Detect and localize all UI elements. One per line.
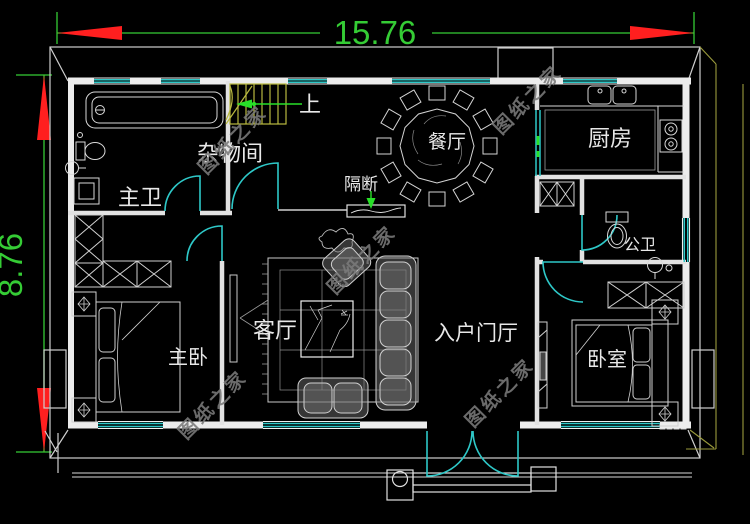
top-dimension-value: 15.76 [334, 14, 417, 51]
room-label-master-bath: 主卫 [118, 185, 162, 210]
room-label-stairs-up: 上 [299, 92, 321, 117]
watermark-text: 图纸之家 [173, 365, 251, 443]
porch-edge [72, 473, 692, 477]
room-label-public-bath: 公卫 [624, 237, 656, 254]
floor-plan-svg: 15.76 8.76 [0, 0, 750, 524]
master-bedroom-furniture [72, 215, 180, 422]
watermarks: 图纸之家 图纸之家 图纸之家 图纸之家 图纸之家 [173, 60, 566, 443]
room-label-entry-hall: 入户门厅 [434, 322, 518, 345]
wardrobe-bedroom [608, 282, 684, 308]
room-label-living: 客厅 [253, 318, 297, 343]
storage-door [232, 163, 278, 209]
bedroom-door [543, 262, 583, 302]
left-dimension-value: 8.76 [0, 233, 29, 297]
entry-steps [387, 467, 556, 500]
dim-arrow-left-icon [57, 26, 122, 40]
loveseat [298, 378, 368, 418]
cabinet-x [540, 182, 574, 206]
master-bath-door [165, 176, 200, 211]
room-label-dining: 餐厅 [428, 131, 466, 153]
entry-double-door [427, 431, 472, 476]
wardrobe-l [75, 215, 171, 287]
dim-arrow-up-icon [37, 75, 51, 140]
partition-console [347, 205, 405, 217]
room-label-master-bed: 主卧 [168, 346, 208, 369]
room-label-kitchen: 厨房 [588, 126, 632, 151]
coffee-table [301, 301, 353, 357]
bedroom-furniture [538, 182, 684, 426]
tv-panel [230, 275, 237, 362]
dim-arrow-right-icon [630, 26, 694, 40]
kitchen-slider-marks [537, 136, 540, 157]
floor-plan-screenshot: 15.76 8.76 [0, 0, 750, 524]
master-bedroom-door [187, 226, 222, 261]
sofa-right [376, 256, 416, 410]
room-label-partition: 隔断 [344, 175, 378, 194]
watermark-text: 图纸之家 [460, 353, 538, 431]
tv-cabinet-bedroom [538, 322, 547, 408]
watermark-text: 图纸之家 [488, 60, 566, 138]
room-label-bedroom: 卧室 [587, 348, 627, 371]
